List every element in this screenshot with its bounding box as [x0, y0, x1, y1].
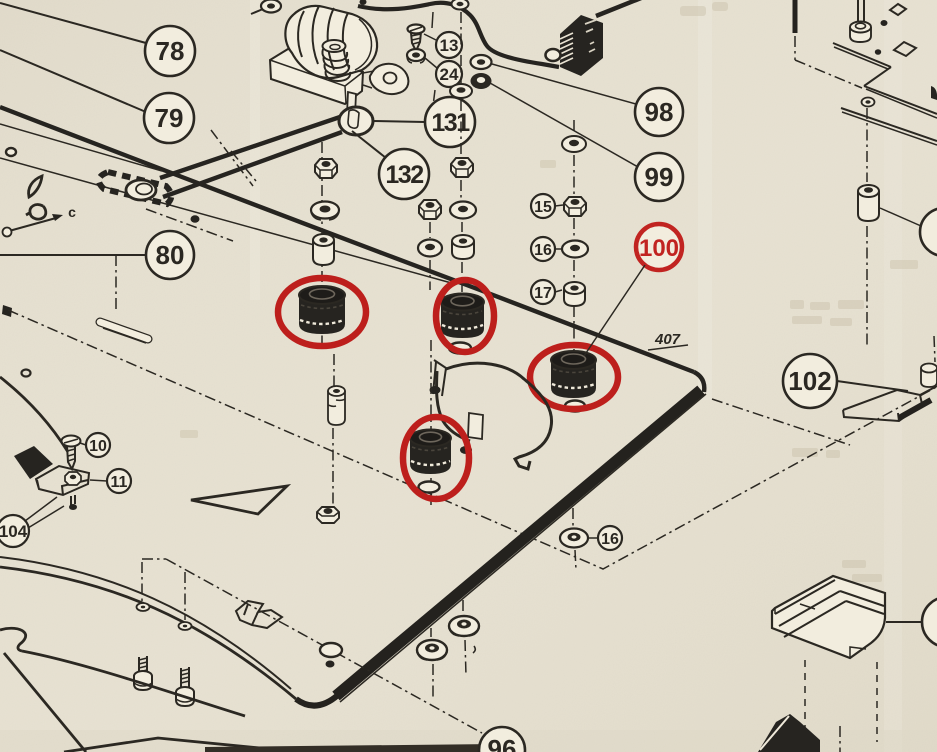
svg-text:78: 78 [156, 36, 185, 66]
svg-text:15: 15 [534, 199, 552, 216]
svg-text:80: 80 [156, 240, 185, 270]
svg-text:13: 13 [440, 36, 459, 55]
svg-text:102: 102 [788, 366, 831, 396]
svg-text:407: 407 [654, 331, 681, 348]
svg-text:98: 98 [645, 97, 674, 127]
svg-text:16: 16 [534, 242, 552, 259]
svg-text:79: 79 [155, 103, 184, 133]
svg-text:99: 99 [645, 162, 674, 192]
svg-text:c: c [68, 204, 76, 220]
svg-text:131: 131 [431, 109, 470, 137]
svg-text:11: 11 [111, 474, 128, 491]
svg-text:100: 100 [639, 235, 679, 262]
svg-text:17: 17 [534, 285, 552, 302]
svg-text:10: 10 [89, 438, 107, 455]
svg-text:96: 96 [488, 734, 517, 752]
svg-text:16: 16 [601, 531, 619, 548]
svg-text:132: 132 [385, 161, 423, 189]
svg-text:24: 24 [440, 65, 459, 84]
svg-text:104: 104 [0, 522, 28, 541]
